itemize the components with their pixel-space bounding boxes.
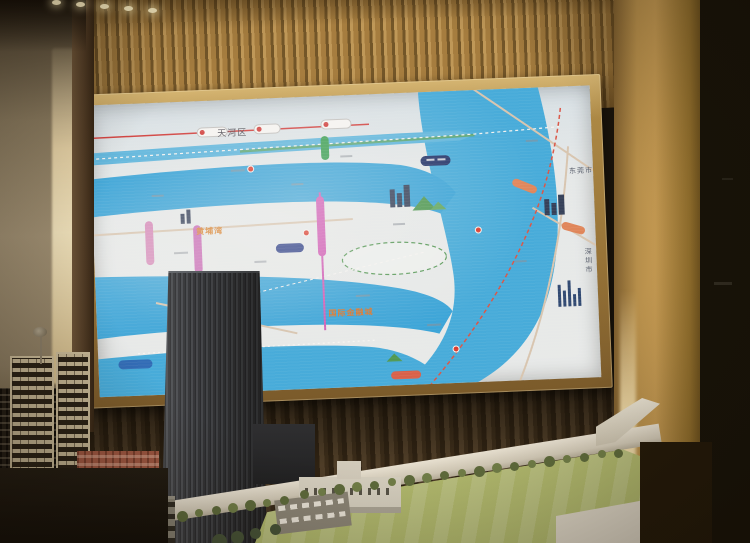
lamp-pole-head: [33, 327, 47, 337]
dark-floor: [640, 442, 712, 543]
model-podium: [253, 424, 315, 484]
led-screen: 天河区 东莞市 深圳市 国际金融城 黄埔湾: [88, 85, 601, 397]
ceiling-shadow: [0, 0, 86, 52]
ceiling-lamp: [52, 0, 61, 5]
ceiling-lamp: [124, 6, 133, 11]
ceiling-lamp: [148, 8, 157, 13]
glass-reflection: [722, 178, 733, 180]
showroom-photo: 天河区 东莞市 深圳市 国际金融城 黄埔湾: [0, 0, 750, 543]
glass-reflection: [714, 282, 732, 285]
model-cars-row: [278, 498, 344, 511]
model-roof-box: [337, 461, 361, 479]
model-cars-row: [279, 511, 345, 524]
model-framework-tower: [10, 356, 54, 478]
screen-reflection-glow: [88, 85, 601, 397]
lamp-pole: [40, 334, 42, 364]
ceiling-lamp: [76, 2, 85, 7]
screen-gold-frame: 天河区 东莞市 深圳市 国际金融城 黄埔湾: [77, 74, 613, 409]
left-light-strip: [52, 48, 74, 384]
ceiling-lamp: [100, 4, 109, 9]
model-dark-base: [0, 468, 168, 543]
model-white-building-windows: [305, 488, 395, 495]
